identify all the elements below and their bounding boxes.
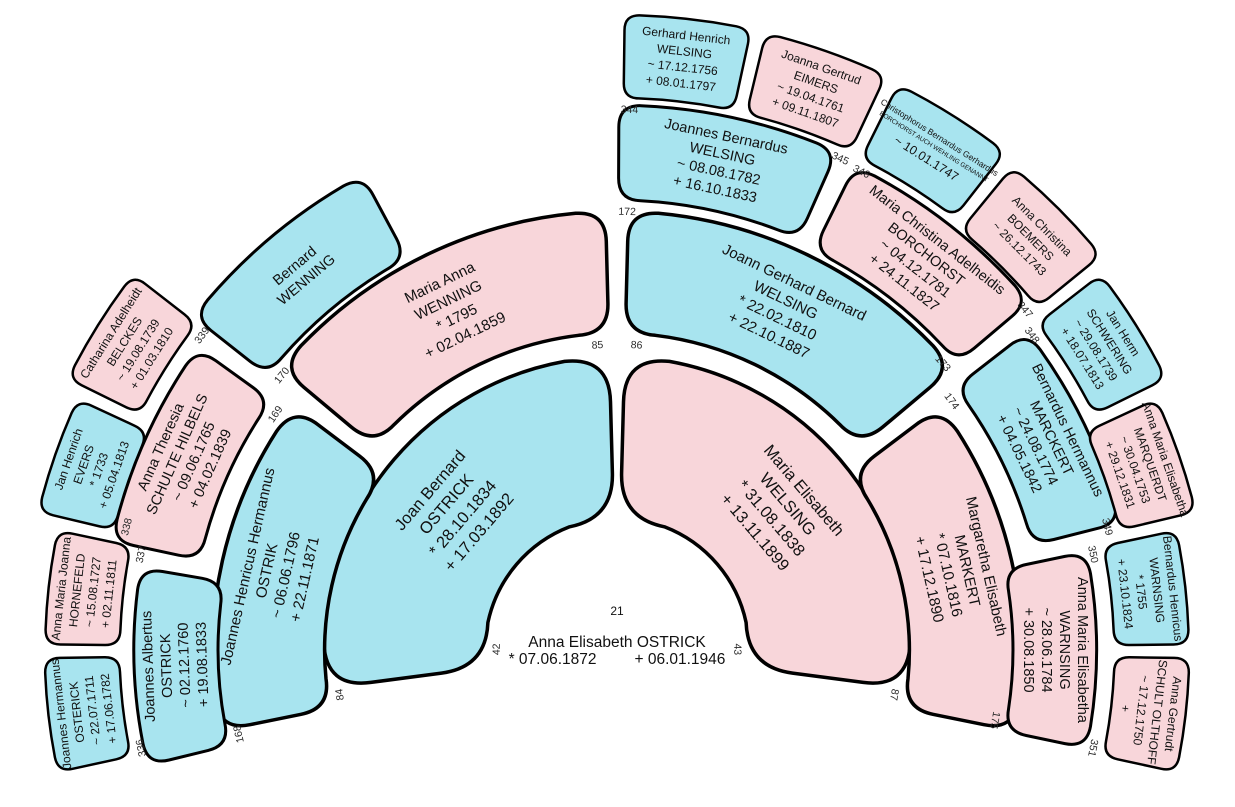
segment-168-label-1: OSTRICK	[158, 633, 176, 698]
kekule-number-337: 337	[134, 544, 149, 564]
center-person-birth: * 07.06.1872	[509, 651, 597, 668]
segment-175-label-0: Anna Maria Elisabetha	[1074, 577, 1090, 724]
segment-168-label-2: ~ 02.12.1760	[176, 622, 195, 708]
center-person-death: + 06.01.1946	[634, 651, 725, 668]
kekule-number-86: 86	[630, 339, 643, 352]
kekule-number-351: 351	[1085, 738, 1100, 758]
kekule-number-350: 350	[1085, 545, 1100, 565]
center-person-number: 21	[467, 604, 767, 618]
segment-175-label-3: + 30.08.1850	[1020, 607, 1036, 692]
center-person-name: Anna Elisabeth OSTRICK	[467, 634, 767, 651]
center-person-dates: * 07.06.1872+ 06.01.1946	[467, 651, 767, 668]
kekule-number-84: 84	[333, 688, 347, 702]
segment-168-label-3: + 19.08.1833	[194, 622, 213, 708]
center-person[interactable]: 21 Anna Elisabeth OSTRICK * 07.06.1872+ …	[467, 604, 767, 668]
kekule-number-174: 174	[941, 391, 961, 412]
segment-175-label-2: ~ 28.06.1784	[1038, 607, 1054, 692]
kekule-number-87: 87	[887, 688, 901, 702]
kekule-number-345: 345	[830, 150, 851, 168]
kekule-number-170: 170	[272, 365, 292, 386]
fan-chart: Joan BernardOSTRICK* 28.10.1834+ 17.03.1…	[0, 0, 1235, 807]
kekule-number-172: 172	[618, 206, 636, 218]
kekule-number-85: 85	[591, 339, 604, 352]
kekule-number-344: 344	[621, 104, 639, 116]
segment-175-label-1: WARNSING	[1056, 610, 1072, 689]
